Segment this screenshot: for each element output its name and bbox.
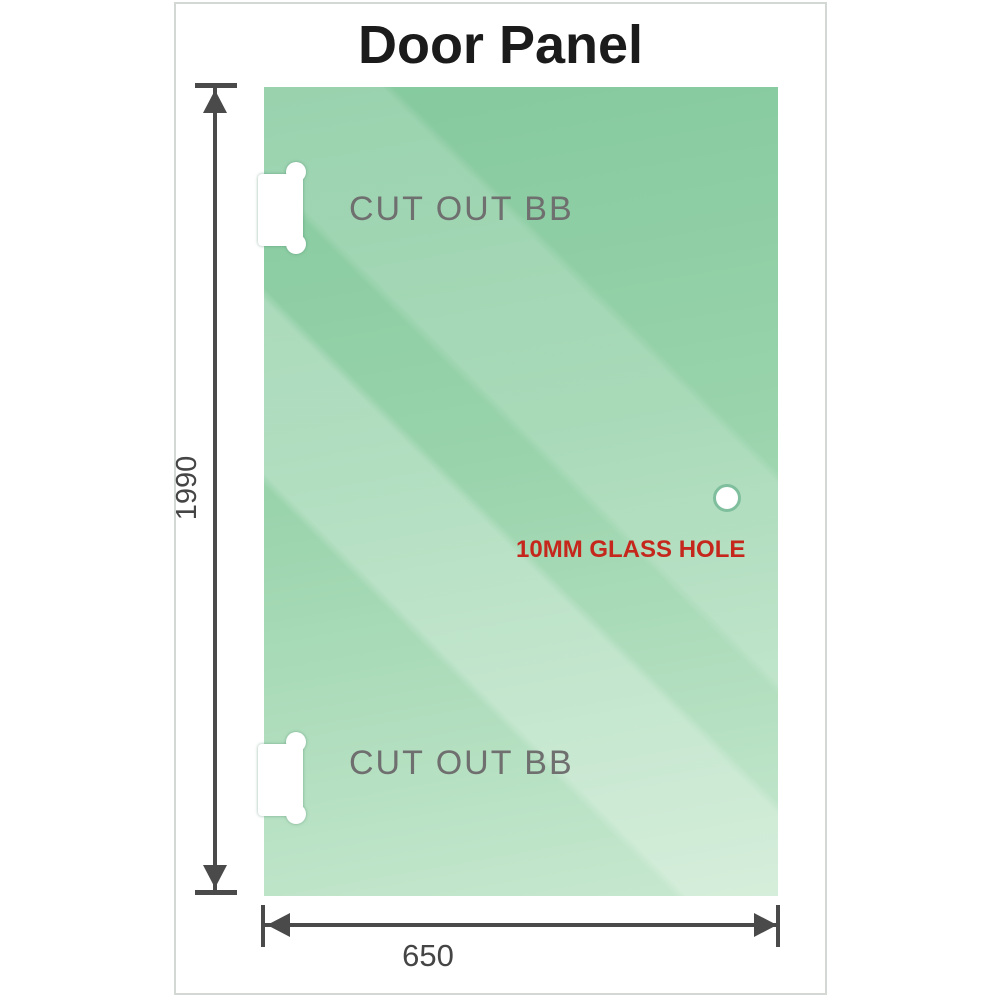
glass-hole-label: 10MM GLASS HOLE bbox=[516, 536, 745, 564]
diagram-title: Door Panel bbox=[174, 14, 827, 76]
hinge-cutout-bottom-icon bbox=[258, 732, 310, 826]
height-dim-cap-bottom bbox=[195, 890, 237, 895]
door-panel-glass: CUT OUT BB CUT OUT BB 10MM GLASS HOLE bbox=[264, 87, 778, 896]
width-dim-label: 650 bbox=[378, 938, 478, 974]
width-dim-tick-left bbox=[261, 905, 265, 947]
arrow-right-icon bbox=[754, 913, 777, 937]
height-dim-cap-top bbox=[195, 83, 237, 88]
arrow-up-icon bbox=[203, 90, 227, 113]
cutout-label-top: CUT OUT BB bbox=[349, 190, 574, 229]
cutout-label-bottom: CUT OUT BB bbox=[349, 744, 574, 783]
arrow-down-icon bbox=[203, 865, 227, 888]
width-dim-line bbox=[264, 923, 778, 927]
hinge-cutout-top-icon bbox=[258, 162, 310, 256]
arrow-left-icon bbox=[267, 913, 290, 937]
height-dim-line bbox=[213, 87, 217, 893]
glass-hole-icon bbox=[713, 484, 741, 512]
height-dim-label: 1990 bbox=[172, 428, 202, 548]
